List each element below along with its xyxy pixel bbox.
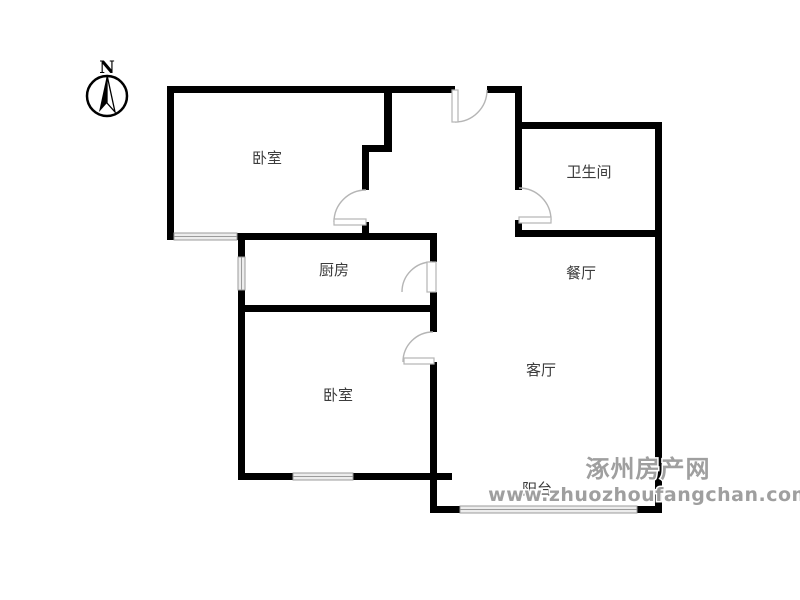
wall — [515, 230, 662, 237]
wall — [237, 233, 437, 240]
north-compass: N — [87, 58, 127, 116]
wall — [167, 86, 174, 240]
wall — [353, 473, 452, 480]
wall — [515, 122, 662, 129]
wall — [515, 86, 522, 190]
room-label-bedroom-2: 卧室 — [323, 386, 353, 404]
wall — [167, 86, 455, 93]
room-label-kitchen: 厨房 — [319, 261, 349, 279]
compass-needle-left — [99, 75, 107, 112]
wall — [437, 506, 460, 513]
wall — [384, 86, 392, 152]
entrance-door-arc — [455, 90, 487, 122]
wall — [637, 506, 662, 513]
floorplan-svg: 卧室卫生间厨房餐厅客厅卧室阳台 N 涿州房产网www.zhuozhoufangc… — [0, 0, 800, 600]
wall — [238, 305, 437, 312]
bedroom-1-door-arc — [334, 190, 366, 222]
room-label-bedroom-1: 卧室 — [252, 149, 282, 167]
kitchen-door-leaf — [427, 262, 436, 292]
bedroom-2-door-leaf — [404, 358, 434, 364]
bathroom-door-leaf — [519, 217, 551, 223]
entrance-door-leaf — [452, 90, 458, 122]
bathroom-door-arc — [519, 188, 551, 220]
floorplan-image: 卧室卫生间厨房餐厅客厅卧室阳台 N 涿州房产网www.zhuozhoufangc… — [0, 0, 800, 600]
wall — [430, 233, 437, 262]
watermark-site-name: 涿州房产网 — [586, 455, 711, 483]
room-label-dining-room: 餐厅 — [566, 264, 596, 282]
wall — [238, 473, 293, 480]
room-label-living-room: 客厅 — [526, 361, 556, 379]
bedroom-1-door-leaf — [334, 219, 366, 225]
watermark-url: www.zhuozhoufangchan.com — [488, 484, 800, 506]
wall — [238, 240, 245, 257]
wall — [430, 362, 437, 473]
walls-group — [167, 86, 662, 513]
compass-needle-right — [107, 75, 115, 112]
wall — [430, 473, 437, 513]
wall — [430, 292, 437, 332]
wall — [362, 145, 369, 190]
wall — [238, 290, 245, 473]
room-label-bathroom: 卫生间 — [566, 163, 611, 181]
